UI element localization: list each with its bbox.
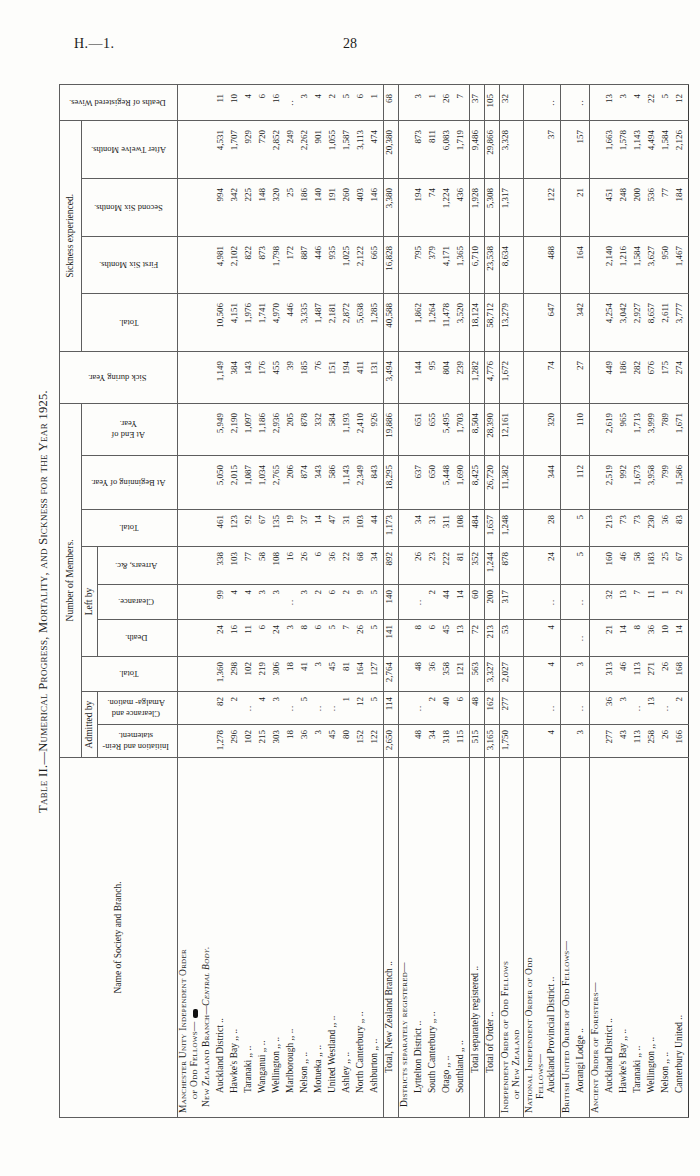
rotated-table-region: Table II.—Numerical Progress, Mortality,… bbox=[36, 78, 698, 1126]
cell-total_left: 1,657 bbox=[484, 510, 499, 547]
cell-clearance bbox=[178, 585, 201, 620]
cell-initiation bbox=[523, 725, 546, 758]
cell-total_sickness: 5,638 bbox=[355, 293, 369, 351]
cell-at_beginning: 344 bbox=[546, 456, 561, 510]
cell-total_left: 484 bbox=[469, 510, 484, 547]
table-row: Hawke's Bay ,, ..29622981641031232,0152,… bbox=[229, 84, 243, 1117]
cell-at_beginning bbox=[178, 456, 201, 510]
cell-initiation: 3 bbox=[575, 725, 590, 758]
cell-at_end: 19,886 bbox=[383, 403, 398, 455]
cell-after_twelve: 249 bbox=[285, 120, 299, 178]
cell-arrears: 68 bbox=[355, 547, 369, 585]
cell-arrears bbox=[201, 547, 215, 585]
cell-total_admitted bbox=[561, 657, 576, 692]
cell-total_sickness bbox=[178, 293, 201, 351]
cell-sick_during: 27 bbox=[575, 351, 590, 403]
cell-total_sickness bbox=[523, 293, 546, 351]
cell-arrears: 892 bbox=[383, 547, 398, 585]
cell-sick_during: 185 bbox=[299, 351, 313, 403]
cell-arrears: 67 bbox=[674, 547, 689, 585]
cell-at_beginning: 26,720 bbox=[484, 456, 499, 510]
cell-after_twelve bbox=[590, 120, 605, 178]
col-header-sick-during-year: Sick during Year. bbox=[60, 351, 178, 403]
cell-total_admitted: 3 bbox=[313, 657, 327, 692]
cell-deaths_wives: 16 bbox=[271, 84, 285, 120]
col-header-second-six-months: Second Six Months. bbox=[82, 178, 178, 236]
cell-total_left: 83 bbox=[674, 510, 689, 547]
row-label: Canterbury United .. bbox=[674, 758, 689, 1118]
cell-total_left: 37 bbox=[299, 510, 313, 547]
cell-sick_during: 282 bbox=[632, 351, 646, 403]
cell-at_end bbox=[201, 403, 215, 455]
col-header-clearance: Clearance. bbox=[98, 585, 178, 620]
cell-at_beginning: 637 bbox=[413, 456, 427, 510]
cell-second_six bbox=[178, 178, 201, 236]
cell-death bbox=[398, 620, 413, 657]
cell-initiation: 18 bbox=[285, 725, 299, 758]
cell-after_twelve: 1,055 bbox=[327, 120, 341, 178]
cell-at_end: 3,999 bbox=[646, 403, 660, 455]
cell-at_end: 878 bbox=[299, 403, 313, 455]
col-group-left-by: Left by bbox=[82, 547, 98, 657]
row-label: British United Order of Odd Fellows— bbox=[561, 758, 576, 1118]
cell-deaths_wives: 105 bbox=[484, 84, 499, 120]
cell-at_beginning: 2,765 bbox=[271, 456, 285, 510]
cell-arrears: 103 bbox=[229, 547, 243, 585]
cell-total_sickness: 647 bbox=[546, 293, 561, 351]
cell-death: 4 bbox=[546, 620, 561, 657]
cell-after_twelve: 1,663 bbox=[604, 120, 618, 178]
table-row: North Canterbury ,, ..15212164269681032,… bbox=[355, 84, 369, 1117]
cell-total_sickness: 3,777 bbox=[674, 293, 689, 351]
table-row: Taranaki ,, ..113..1138758731,6731,71328… bbox=[632, 84, 646, 1117]
cell-death: 24 bbox=[215, 620, 229, 657]
cell-sick_during: 194 bbox=[341, 351, 355, 403]
table-row: Aorangi Lodge ..3..3....5511211027342164… bbox=[575, 84, 590, 1117]
cell-total_sickness: 4,151 bbox=[229, 293, 243, 351]
row-label: Wellington ,, .. bbox=[271, 758, 285, 1118]
cell-after_twelve bbox=[201, 120, 215, 178]
cell-clearance: 4 bbox=[243, 585, 257, 620]
table-row: Manchester Unity Independent Orderof Odd… bbox=[178, 84, 201, 1117]
cell-total_sickness: 8,657 bbox=[646, 293, 660, 351]
row-label: United Westland ,, .. bbox=[327, 758, 341, 1118]
cell-death: 13 bbox=[455, 620, 470, 657]
table-row: Nelson ,, ..365418326378748781853,335887… bbox=[299, 84, 313, 1117]
cell-at_beginning: 1,690 bbox=[455, 456, 470, 510]
table-row: Total of Order ..3,1651623,3272132001,24… bbox=[484, 84, 499, 1117]
cell-sick_during: 455 bbox=[271, 351, 285, 403]
table-row: Auckland District ..2773631321321602132,… bbox=[604, 84, 618, 1117]
cell-deaths_wives: 10 bbox=[229, 84, 243, 120]
cell-initiation: 258 bbox=[646, 725, 660, 758]
cell-sick_during: 74 bbox=[546, 351, 561, 403]
cell-second_six: 194 bbox=[413, 178, 427, 236]
cell-arrears: 34 bbox=[369, 547, 384, 585]
cell-clearance bbox=[398, 585, 413, 620]
cell-at_beginning: 8,425 bbox=[469, 456, 484, 510]
cell-clearance_amalg: .. bbox=[243, 692, 257, 725]
cell-after_twelve: 4,531 bbox=[215, 120, 229, 178]
cell-initiation: 215 bbox=[257, 725, 271, 758]
row-label: Wellington ,, .. bbox=[646, 758, 660, 1118]
cell-sick_during: 411 bbox=[355, 351, 369, 403]
cell-death: 141 bbox=[383, 620, 398, 657]
cell-sick_during: 239 bbox=[455, 351, 470, 403]
cell-arrears: 16 bbox=[285, 547, 299, 585]
cell-total_sickness: 1,487 bbox=[313, 293, 327, 351]
cell-second_six: 184 bbox=[674, 178, 689, 236]
table-row: Otago ,, ..3184035845442223115,4485,4958… bbox=[441, 84, 455, 1117]
cell-total_left: 461 bbox=[215, 510, 229, 547]
cell-clearance bbox=[590, 585, 605, 620]
cell-clearance_amalg: 162 bbox=[484, 692, 499, 725]
cell-arrears bbox=[178, 547, 201, 585]
cell-sick_during bbox=[590, 351, 605, 403]
cell-clearance_amalg: 12 bbox=[355, 692, 369, 725]
cell-death bbox=[523, 620, 546, 657]
cell-initiation: 48 bbox=[413, 725, 427, 758]
cell-clearance: 1 bbox=[660, 585, 674, 620]
cell-at_beginning: 1,673 bbox=[632, 456, 646, 510]
cell-total_sickness: 3,520 bbox=[455, 293, 470, 351]
row-label: Aorangi Lodge .. bbox=[575, 758, 590, 1118]
cell-clearance_amalg bbox=[178, 692, 201, 725]
cell-total_sickness: 446 bbox=[285, 293, 299, 351]
cell-at_beginning: 206 bbox=[285, 456, 299, 510]
page-number: 28 bbox=[0, 36, 700, 52]
cell-after_twelve: 901 bbox=[313, 120, 327, 178]
row-label: North Canterbury ,, .. bbox=[355, 758, 369, 1118]
cell-clearance_amalg: 36 bbox=[604, 692, 618, 725]
row-label: Total of Order .. bbox=[484, 758, 499, 1118]
cell-total_admitted: 3 bbox=[575, 657, 590, 692]
cell-sick_during: 131 bbox=[369, 351, 384, 403]
cell-total_left: 311 bbox=[441, 510, 455, 547]
cell-second_six: 122 bbox=[546, 178, 561, 236]
cell-sick_during: 175 bbox=[660, 351, 674, 403]
cell-at_beginning: 874 bbox=[299, 456, 313, 510]
cell-total_left: 92 bbox=[243, 510, 257, 547]
cell-at_end: 110 bbox=[575, 403, 590, 455]
cell-second_six: 25 bbox=[285, 178, 299, 236]
cell-second_six: 260 bbox=[341, 178, 355, 236]
table-row: Ashley ,, ..801817222311,1431,1931942,87… bbox=[341, 84, 355, 1117]
col-header-after-twelve-months: After Twelve Months. bbox=[82, 120, 178, 178]
cell-arrears: 81 bbox=[455, 547, 470, 585]
table-row: National Independent Order of OddFellows… bbox=[523, 84, 546, 1117]
cell-after_twelve: 873 bbox=[413, 120, 427, 178]
cell-deaths_wives: 3 bbox=[413, 84, 427, 120]
cell-clearance: 7 bbox=[632, 585, 646, 620]
cell-total_sickness: 4,254 bbox=[604, 293, 618, 351]
table-row: Auckland Provincial District ..4..44..24… bbox=[546, 84, 561, 1117]
cell-sick_during: 3,494 bbox=[383, 351, 398, 403]
row-label: Hawke's Bay ,, .. bbox=[229, 758, 243, 1118]
table-row: Districts separately registered— bbox=[398, 84, 413, 1117]
cell-arrears bbox=[523, 547, 546, 585]
cell-total_admitted: 41 bbox=[299, 657, 313, 692]
table-row: Taranaki ,, ..102..10211477921,0871,0971… bbox=[243, 84, 257, 1117]
cell-sick_during: 384 bbox=[229, 351, 243, 403]
cell-second_six: 140 bbox=[313, 178, 327, 236]
row-label: Total, New Zealand Branch .. bbox=[383, 758, 398, 1118]
cell-death: 5 bbox=[327, 620, 341, 657]
cell-death: 213 bbox=[484, 620, 499, 657]
row-label: Ashburton ,, .. bbox=[369, 758, 384, 1118]
cell-total_admitted: 1,360 bbox=[215, 657, 229, 692]
cell-sick_during: 95 bbox=[427, 351, 441, 403]
cell-after_twelve: 20,380 bbox=[383, 120, 398, 178]
table-row: Ashburton ,, ..12251275534448439261311,2… bbox=[369, 84, 384, 1117]
cell-total_sickness: 2,181 bbox=[327, 293, 341, 351]
cell-total_left: 31 bbox=[427, 510, 441, 547]
cell-deaths_wives bbox=[590, 84, 605, 120]
table-row: Total, New Zealand Branch ..2,6501142,76… bbox=[383, 84, 398, 1117]
cell-total_left: 123 bbox=[229, 510, 243, 547]
cell-initiation: 1,750 bbox=[499, 725, 523, 758]
cell-first_six: 488 bbox=[546, 236, 561, 293]
cell-at_end bbox=[398, 403, 413, 455]
cell-first_six: 23,538 bbox=[484, 236, 499, 293]
table-row: Wellington ,, ..30333062431081352,7652,9… bbox=[271, 84, 285, 1117]
cell-at_end: 28,390 bbox=[484, 403, 499, 455]
cell-clearance: 3 bbox=[271, 585, 285, 620]
cell-total_sickness: 10,506 bbox=[215, 293, 229, 351]
cell-at_end: 1,193 bbox=[341, 403, 355, 455]
cell-after_twelve: 2,262 bbox=[299, 120, 313, 178]
cell-after_twelve: 1,587 bbox=[341, 120, 355, 178]
cell-first_six: 2,102 bbox=[229, 236, 243, 293]
cell-second_six: 186 bbox=[299, 178, 313, 236]
cell-death bbox=[590, 620, 605, 657]
cell-after_twelve bbox=[523, 120, 546, 178]
cell-first_six bbox=[523, 236, 546, 293]
cell-initiation: 2,650 bbox=[383, 725, 398, 758]
cell-sick_during: 1,282 bbox=[469, 351, 484, 403]
cell-arrears: 36 bbox=[327, 547, 341, 585]
cell-initiation: 296 bbox=[229, 725, 243, 758]
cell-death: 36 bbox=[646, 620, 660, 657]
cell-initiation: 122 bbox=[369, 725, 384, 758]
cell-total_sickness: 2,872 bbox=[341, 293, 355, 351]
cell-at_end: 651 bbox=[413, 403, 427, 455]
cell-total_sickness: 2,611 bbox=[660, 293, 674, 351]
cell-at_end: 926 bbox=[369, 403, 384, 455]
cell-total_admitted: 48 bbox=[413, 657, 427, 692]
cell-second_six: 403 bbox=[355, 178, 369, 236]
cell-arrears: 6 bbox=[313, 547, 327, 585]
cell-total_left: 230 bbox=[646, 510, 660, 547]
cell-initiation bbox=[398, 725, 413, 758]
cell-arrears: 108 bbox=[271, 547, 285, 585]
cell-at_end: 584 bbox=[327, 403, 341, 455]
cell-arrears: 160 bbox=[604, 547, 618, 585]
cell-clearance_amalg: 2 bbox=[229, 692, 243, 725]
cell-deaths_wives: 32 bbox=[499, 84, 523, 120]
cell-total_sickness: 1,741 bbox=[257, 293, 271, 351]
cell-sick_during: 39 bbox=[285, 351, 299, 403]
cell-deaths_wives: 1 bbox=[427, 84, 441, 120]
landscape-sheet: Table II.—Numerical Progress, Mortality,… bbox=[36, 78, 698, 1126]
cell-at_end: 205 bbox=[285, 403, 299, 455]
scanned-document-page: { "page": { "doc_ref": "H.—1.", "page_nu… bbox=[0, 0, 700, 1176]
row-label: Hawke's Bay ,, .. bbox=[618, 758, 632, 1118]
cell-total_left bbox=[178, 510, 201, 547]
cell-total_admitted: 18 bbox=[285, 657, 299, 692]
cell-total_left: 34 bbox=[413, 510, 427, 547]
cell-total_sickness bbox=[590, 293, 605, 351]
cell-at_end: 12,161 bbox=[499, 403, 523, 455]
cell-deaths_wives: 5 bbox=[341, 84, 355, 120]
cell-at_end: 655 bbox=[427, 403, 441, 455]
cell-total_admitted: 127 bbox=[369, 657, 384, 692]
table-row: United Westland ,, ..45..455636475865841… bbox=[327, 84, 341, 1117]
cell-at_beginning: 799 bbox=[660, 456, 674, 510]
cell-first_six: 1,467 bbox=[674, 236, 689, 293]
cell-death: 11 bbox=[243, 620, 257, 657]
cell-total_left: 67 bbox=[257, 510, 271, 547]
cell-total_admitted: 2,027 bbox=[499, 657, 523, 692]
cell-first_six: 446 bbox=[313, 236, 327, 293]
cell-clearance: .. bbox=[285, 585, 299, 620]
cell-sick_during bbox=[201, 351, 215, 403]
cell-total_sickness: 3,335 bbox=[299, 293, 313, 351]
cell-total_left: 1,173 bbox=[383, 510, 398, 547]
cell-after_twelve bbox=[561, 120, 576, 178]
cell-deaths_wives bbox=[523, 84, 546, 120]
cell-clearance: 99 bbox=[215, 585, 229, 620]
cell-second_six: 148 bbox=[257, 178, 271, 236]
cell-clearance: .. bbox=[575, 585, 590, 620]
cell-after_twelve: 3,328 bbox=[499, 120, 523, 178]
cell-death: 6 bbox=[313, 620, 327, 657]
cell-deaths_wives: .. bbox=[285, 84, 299, 120]
table-row: Wellington ,, ..2581327136111832303,9583… bbox=[646, 84, 660, 1117]
cell-death: 72 bbox=[469, 620, 484, 657]
col-header-at-end-of-year: At End of Year. bbox=[82, 403, 178, 455]
cell-clearance_amalg bbox=[398, 692, 413, 725]
cell-after_twelve: 1,143 bbox=[632, 120, 646, 178]
cell-after_twelve: 9,486 bbox=[469, 120, 484, 178]
cell-clearance: 32 bbox=[604, 585, 618, 620]
cell-initiation: 43 bbox=[618, 725, 632, 758]
cell-initiation: 515 bbox=[469, 725, 484, 758]
cell-total_left: 31 bbox=[341, 510, 355, 547]
table-row: New Zealand Branch—Central Body. bbox=[201, 84, 215, 1117]
cell-at_beginning: 843 bbox=[369, 456, 384, 510]
cell-total_admitted: 358 bbox=[441, 657, 455, 692]
cell-death: 3 bbox=[285, 620, 299, 657]
cell-clearance: 2 bbox=[427, 585, 441, 620]
cell-total_admitted: 4 bbox=[546, 657, 561, 692]
cell-clearance: 9 bbox=[355, 585, 369, 620]
cell-death bbox=[561, 620, 576, 657]
cell-death: .. bbox=[575, 620, 590, 657]
cell-total_left: 103 bbox=[355, 510, 369, 547]
cell-total_sickness: 342 bbox=[575, 293, 590, 351]
cell-after_twelve: 1,578 bbox=[618, 120, 632, 178]
cell-total_left: 213 bbox=[604, 510, 618, 547]
table-row: Total separately registered ..5154856372… bbox=[469, 84, 484, 1117]
row-label: Ashley ,, .. bbox=[341, 758, 355, 1118]
cell-arrears: 5 bbox=[575, 547, 590, 585]
cell-total_left: 73 bbox=[618, 510, 632, 547]
cell-total_admitted: 219 bbox=[257, 657, 271, 692]
cell-clearance bbox=[523, 585, 546, 620]
cell-first_six: 1,798 bbox=[271, 236, 285, 293]
cell-first_six: 822 bbox=[243, 236, 257, 293]
cell-total_left bbox=[201, 510, 215, 547]
cell-second_six bbox=[523, 178, 546, 236]
cell-sick_during bbox=[178, 351, 201, 403]
cell-at_beginning: 5,448 bbox=[441, 456, 455, 510]
cell-deaths_wives: 26 bbox=[441, 84, 455, 120]
cell-arrears: 58 bbox=[632, 547, 646, 585]
cell-total_admitted: 563 bbox=[469, 657, 484, 692]
cell-death: 8 bbox=[632, 620, 646, 657]
cell-total_admitted: 298 bbox=[229, 657, 243, 692]
cell-first_six: 873 bbox=[257, 236, 271, 293]
cell-clearance: 2 bbox=[313, 585, 327, 620]
cell-death: 8 bbox=[413, 620, 427, 657]
cell-arrears bbox=[590, 547, 605, 585]
cell-total_sickness: 4,970 bbox=[271, 293, 285, 351]
col-header-first-six-months: First Six Months. bbox=[82, 236, 178, 293]
row-label: Southland ,, .. bbox=[455, 758, 470, 1118]
table-row: Motueka ,, ..3..362614343332761,48744614… bbox=[313, 84, 327, 1117]
cell-clearance_amalg: 6 bbox=[455, 692, 470, 725]
cell-deaths_wives: 4 bbox=[243, 84, 257, 120]
cell-at_end: 5,495 bbox=[441, 403, 455, 455]
cell-sick_during: 144 bbox=[413, 351, 427, 403]
cell-initiation bbox=[561, 725, 576, 758]
cell-initiation: 115 bbox=[455, 725, 470, 758]
cell-first_six: 935 bbox=[327, 236, 341, 293]
cell-after_twelve: 1,584 bbox=[660, 120, 674, 178]
cell-total_left bbox=[523, 510, 546, 547]
cell-death: 45 bbox=[441, 620, 455, 657]
cell-clearance: 13 bbox=[618, 585, 632, 620]
cell-total_admitted bbox=[201, 657, 215, 692]
cell-clearance_amalg: 277 bbox=[499, 692, 523, 725]
cell-total_sickness: 40,588 bbox=[383, 293, 398, 351]
cell-at_beginning: 1,586 bbox=[674, 456, 689, 510]
cell-first_six: 1,365 bbox=[455, 236, 470, 293]
cell-total_sickness: 1,285 bbox=[369, 293, 384, 351]
row-label: Taranaki ,, .. bbox=[243, 758, 257, 1118]
cell-total_admitted bbox=[398, 657, 413, 692]
cell-first_six bbox=[398, 236, 413, 293]
cell-after_twelve: 2,126 bbox=[674, 120, 689, 178]
cell-second_six bbox=[561, 178, 576, 236]
cell-after_twelve: 6,083 bbox=[441, 120, 455, 178]
cell-clearance_amalg: 3 bbox=[271, 692, 285, 725]
cell-at_beginning bbox=[561, 456, 576, 510]
col-header-death: Death. bbox=[98, 620, 178, 657]
cell-first_six bbox=[590, 236, 605, 293]
cell-at_end: 965 bbox=[618, 403, 632, 455]
cell-at_beginning: 992 bbox=[618, 456, 632, 510]
cell-arrears: 22 bbox=[341, 547, 355, 585]
cell-clearance_amalg: 2 bbox=[427, 692, 441, 725]
cell-deaths_wives: .. bbox=[546, 84, 561, 120]
cell-total_admitted bbox=[178, 657, 201, 692]
cell-second_six: 225 bbox=[243, 178, 257, 236]
cell-clearance_amalg: .. bbox=[327, 692, 341, 725]
cell-death: 21 bbox=[604, 620, 618, 657]
row-label: Districts separately registered— bbox=[398, 758, 413, 1118]
